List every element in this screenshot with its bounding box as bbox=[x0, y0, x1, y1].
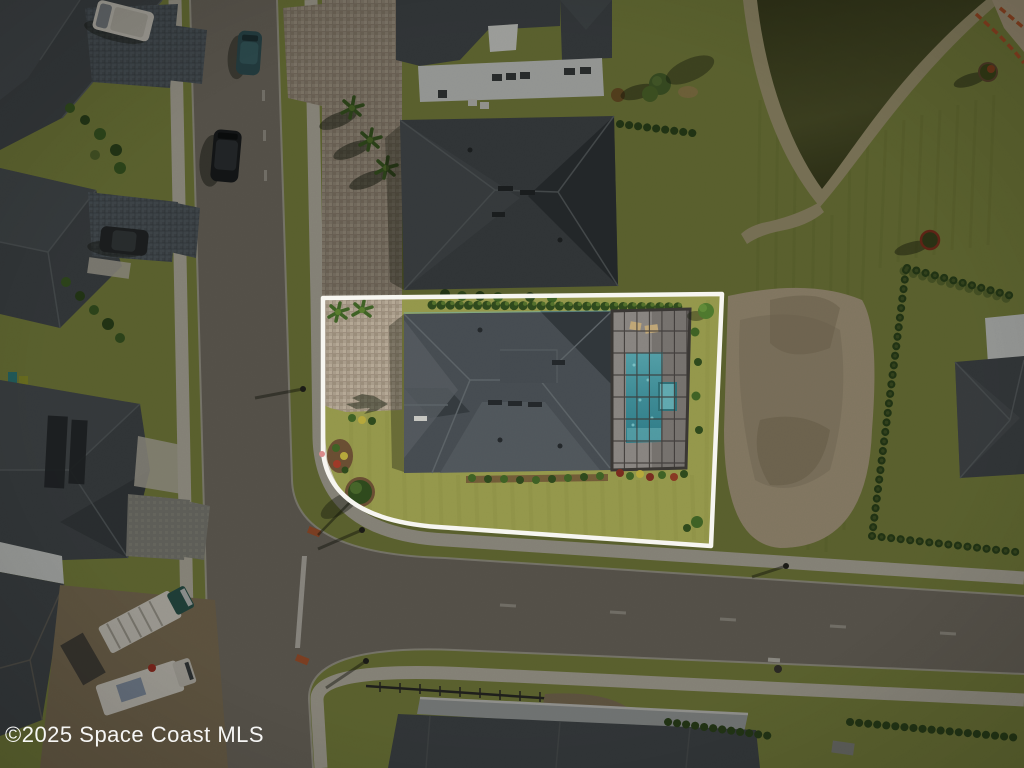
aerial-scene bbox=[0, 0, 1024, 768]
aerial-photo: ©2025 Space Coast MLS bbox=[0, 0, 1024, 768]
mls-watermark: ©2025 Space Coast MLS bbox=[5, 722, 264, 748]
utility-marker bbox=[319, 451, 325, 457]
